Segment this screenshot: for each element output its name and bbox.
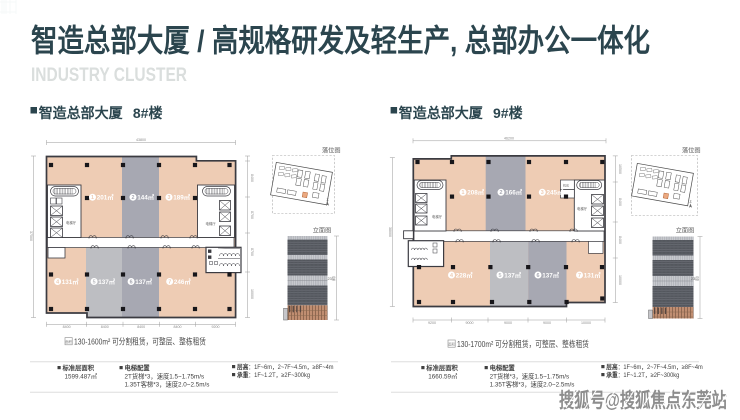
svg-text:3: 3 — [168, 195, 171, 201]
svg-text:10500: 10500 — [618, 164, 622, 174]
svg-text:10000: 10000 — [250, 289, 254, 299]
svg-text:10000: 10000 — [581, 321, 591, 325]
svg-text:8400: 8400 — [618, 198, 622, 206]
svg-text:9200: 9200 — [428, 321, 436, 325]
svg-text:246㎡: 246㎡ — [174, 277, 192, 286]
svg-text:46200: 46200 — [504, 136, 514, 140]
svg-text:7: 7 — [168, 279, 171, 285]
svg-text:23层: 23层 — [691, 276, 699, 281]
svg-text:37500: 37500 — [29, 231, 33, 241]
svg-text:承重：1F~1.2T，≥2F~300kg: 承重：1F~1.2T，≥2F~300kg — [237, 370, 310, 379]
svg-text:8400: 8400 — [250, 174, 254, 182]
svg-text:1: 1 — [91, 195, 94, 201]
svg-text:208㎡: 208㎡ — [467, 188, 485, 197]
svg-text:层高：1F~6m，2~7F~4.5m，≥8F~4m: 层高：1F~6m，2~7F~4.5m，≥8F~4m — [237, 362, 334, 371]
svg-text:245㎡: 245㎡ — [547, 188, 565, 197]
svg-text:2: 2 — [500, 190, 503, 196]
svg-text:189㎡: 189㎡ — [173, 193, 191, 202]
svg-text:立面图: 立面图 — [313, 227, 332, 235]
svg-text:131㎡: 131㎡ — [584, 270, 602, 279]
svg-text:8700: 8700 — [250, 248, 254, 256]
svg-text:电梯厅: 电梯厅 — [432, 214, 443, 219]
svg-text:落位图: 落位图 — [682, 147, 701, 155]
svg-text:4: 4 — [450, 273, 453, 279]
svg-text:北: 北 — [326, 198, 329, 202]
svg-text:8400: 8400 — [137, 325, 145, 329]
svg-text:201㎡: 201㎡ — [97, 193, 115, 202]
svg-text:北: 北 — [689, 200, 692, 204]
svg-text:9000: 9000 — [504, 321, 512, 325]
svg-text:标准层面积: 标准层面积 — [425, 363, 458, 372]
svg-text:9000: 9000 — [466, 321, 474, 325]
svg-text:9#楼: 9#楼 — [493, 105, 523, 121]
svg-text:8400: 8400 — [63, 325, 71, 329]
svg-text:9200: 9200 — [212, 325, 220, 329]
svg-text:层高：1F~6m，2~7F~4.5m，≥8F~4m: 层高：1F~6m，2~7F~4.5m，≥8F~4m — [606, 362, 703, 371]
svg-text:5: 5 — [93, 279, 96, 285]
svg-text:1.35T客梯*3，速度2.0~2.5m/s: 1.35T客梯*3，速度2.0~2.5m/s — [490, 380, 575, 389]
svg-text:8#楼: 8#楼 — [133, 105, 163, 121]
svg-text:38000: 38000 — [388, 227, 392, 237]
svg-text:落位图: 落位图 — [322, 147, 341, 155]
svg-text:2: 2 — [132, 195, 135, 201]
svg-text:6: 6 — [537, 273, 540, 279]
svg-text:标准层面积: 标准层面积 — [62, 363, 95, 372]
svg-text:137㎡: 137㎡ — [542, 270, 560, 279]
svg-text:131㎡: 131㎡ — [62, 277, 80, 286]
svg-text:144㎡: 144㎡ — [137, 193, 155, 202]
svg-text:43800: 43800 — [136, 138, 146, 142]
svg-text:电梯厅: 电梯厅 — [577, 206, 588, 211]
svg-text:2T货梯*3，速度1.5~1.75m/s: 2T货梯*3，速度1.5~1.75m/s — [490, 372, 570, 381]
svg-text:137㎡: 137㎡ — [504, 270, 522, 279]
svg-text:137㎡: 137㎡ — [98, 277, 116, 286]
svg-text:1.35T客梯*3，速度2.0~2.5m/s: 1.35T客梯*3，速度2.0~2.5m/s — [125, 380, 210, 389]
svg-text:7: 7 — [578, 273, 581, 279]
svg-text:电梯厅: 电梯厅 — [206, 221, 217, 226]
svg-text:智造总部大厦 / 高规格研发及轻生产, 总部办公一体化: 智造总部大厦 / 高规格研发及轻生产, 总部办公一体化 — [31, 24, 650, 59]
svg-text:10000: 10000 — [618, 275, 622, 285]
svg-text:3: 3 — [541, 190, 544, 196]
svg-text:9000: 9000 — [543, 321, 551, 325]
svg-text:1: 1 — [462, 190, 465, 196]
svg-text:2T货梯*3，速度1.5~1.75m/s: 2T货梯*3，速度1.5~1.75m/s — [125, 372, 205, 381]
svg-text:机房: 机房 — [563, 183, 569, 188]
svg-text:6: 6 — [130, 279, 133, 285]
svg-text:电梯厅: 电梯厅 — [66, 220, 77, 225]
svg-text:电梯配置: 电梯配置 — [490, 363, 516, 372]
svg-text:23层: 23层 — [327, 276, 335, 281]
svg-text:面积: 面积 — [448, 341, 455, 346]
svg-text:1599.487㎡: 1599.487㎡ — [65, 372, 98, 381]
svg-text:8400: 8400 — [174, 325, 182, 329]
svg-text:搜狐号@搜狐焦点东莞站: 搜狐号@搜狐焦点东莞站 — [559, 388, 727, 412]
svg-text:面积: 面积 — [65, 339, 72, 344]
svg-text:智造总部大厦: 智造总部大厦 — [398, 105, 484, 121]
svg-text:5: 5 — [499, 273, 502, 279]
svg-text:1660.59㎡: 1660.59㎡ — [428, 372, 458, 381]
svg-text:8700: 8700 — [250, 211, 254, 219]
svg-text:承重：1F~1.2T，≥2F~300kg: 承重：1F~1.2T，≥2F~300kg — [606, 370, 679, 379]
svg-text:130-1700m² 可分割租赁，可整层、整栋租赁: 130-1700m² 可分割租赁，可整层、整栋租赁 — [457, 339, 589, 349]
svg-text:智造总部大厦: 智造总部大厦 — [38, 105, 124, 121]
svg-text:8400: 8400 — [101, 325, 109, 329]
svg-text:8400: 8400 — [618, 236, 622, 244]
svg-text:130-1600m² 可分割租赁，可整层、整栋租赁: 130-1600m² 可分割租赁，可整层、整栋租赁 — [74, 337, 206, 347]
svg-text:立面图: 立面图 — [676, 227, 695, 235]
svg-text:228㎡: 228㎡ — [456, 270, 474, 279]
svg-text:电梯配置: 电梯配置 — [125, 363, 151, 372]
svg-text:4: 4 — [56, 279, 59, 285]
svg-text:INDUSTRY CLUSTER: INDUSTRY CLUSTER — [31, 65, 187, 86]
svg-text:137㎡: 137㎡ — [135, 277, 153, 286]
svg-text:166㎡: 166㎡ — [505, 188, 523, 197]
